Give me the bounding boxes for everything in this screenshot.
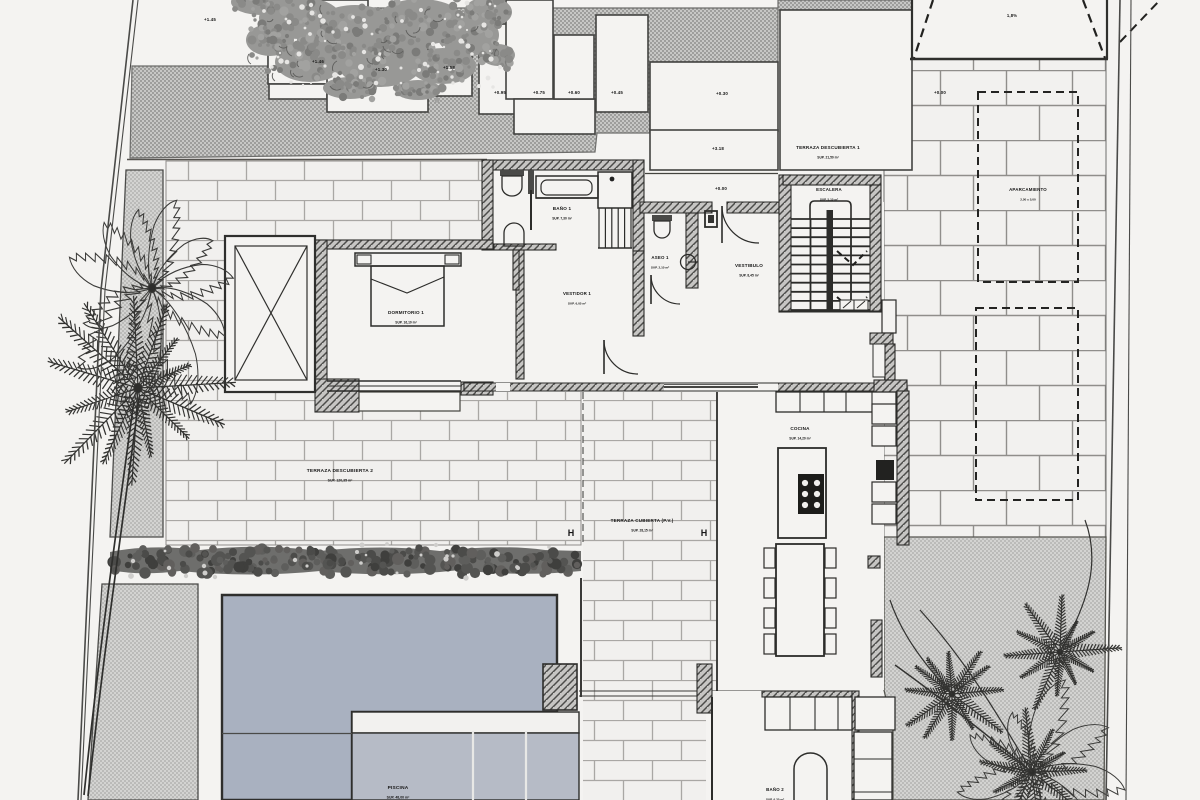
svg-text:H: H — [568, 528, 575, 538]
svg-text:BAÑO 1: BAÑO 1 — [553, 205, 572, 211]
svg-text:SUP. 28,15 m²: SUP. 28,15 m² — [631, 529, 653, 533]
svg-text:TERRAZA CUBIERTA (P.V.): TERRAZA CUBIERTA (P.V.) — [611, 518, 674, 523]
svg-text:+1.45: +1.45 — [204, 17, 216, 22]
svg-text:SUP. 5,10 m²: SUP. 5,10 m² — [820, 198, 838, 202]
svg-text:+0.75: +0.75 — [533, 90, 545, 95]
svg-text:SUP. 16,10 m²: SUP. 16,10 m² — [395, 321, 417, 325]
svg-text:COCINA: COCINA — [790, 426, 810, 431]
svg-text:TERRAZA DESCUBIERTA 2: TERRAZA DESCUBIERTA 2 — [307, 468, 374, 474]
svg-text:TERRAZA DESCUBIERTA 1: TERRAZA DESCUBIERTA 1 — [796, 145, 860, 150]
svg-text:+0.45: +0.45 — [611, 90, 623, 95]
svg-text:1,8%: 1,8% — [1007, 13, 1017, 18]
svg-text:+3.18: +3.18 — [712, 146, 724, 151]
svg-text:SUP. 21,50 m²: SUP. 21,50 m² — [817, 156, 839, 160]
svg-text:+0.30: +0.30 — [716, 91, 728, 96]
svg-text:SUP. 8,45 m²: SUP. 8,45 m² — [739, 274, 759, 278]
svg-text:ESCALERA: ESCALERA — [816, 187, 842, 192]
svg-text:APARCAMIENTO: APARCAMIENTO — [1009, 187, 1047, 192]
svg-text:SUP. 14,20 m²: SUP. 14,20 m² — [789, 437, 811, 441]
svg-text:+1.58: +1.58 — [443, 65, 455, 70]
svg-text:SUP. 2,10 m²: SUP. 2,10 m² — [651, 266, 669, 270]
svg-text:VESTIBULO: VESTIBULO — [735, 263, 763, 268]
svg-text:BAÑO 2: BAÑO 2 — [766, 787, 784, 792]
svg-text:H: H — [701, 528, 708, 538]
svg-text:SUP. 6,05 m²: SUP. 6,05 m² — [568, 302, 586, 306]
svg-text:+0.00: +0.00 — [715, 186, 727, 191]
svg-text:PISCINA: PISCINA — [388, 785, 409, 791]
svg-text:+1.30: +1.30 — [375, 67, 387, 72]
svg-text:SUP. 48,00 m²: SUP. 48,00 m² — [387, 796, 411, 800]
svg-text:DORMITORIO 1: DORMITORIO 1 — [388, 310, 424, 315]
svg-text:+1.46: +1.46 — [312, 59, 324, 64]
svg-text:SUP. 120,35 m²: SUP. 120,35 m² — [328, 479, 353, 483]
svg-text:2,50 x 5,00: 2,50 x 5,00 — [1020, 198, 1036, 202]
svg-text:+0.95: +0.95 — [494, 90, 506, 95]
svg-text:SUP. 7,30 m²: SUP. 7,30 m² — [552, 217, 572, 221]
svg-text:+0.60: +0.60 — [568, 90, 580, 95]
svg-text:ASEO 1: ASEO 1 — [651, 255, 669, 260]
svg-text:VESTIDOR 1: VESTIDOR 1 — [563, 291, 591, 296]
svg-text:+0.00: +0.00 — [934, 90, 946, 95]
